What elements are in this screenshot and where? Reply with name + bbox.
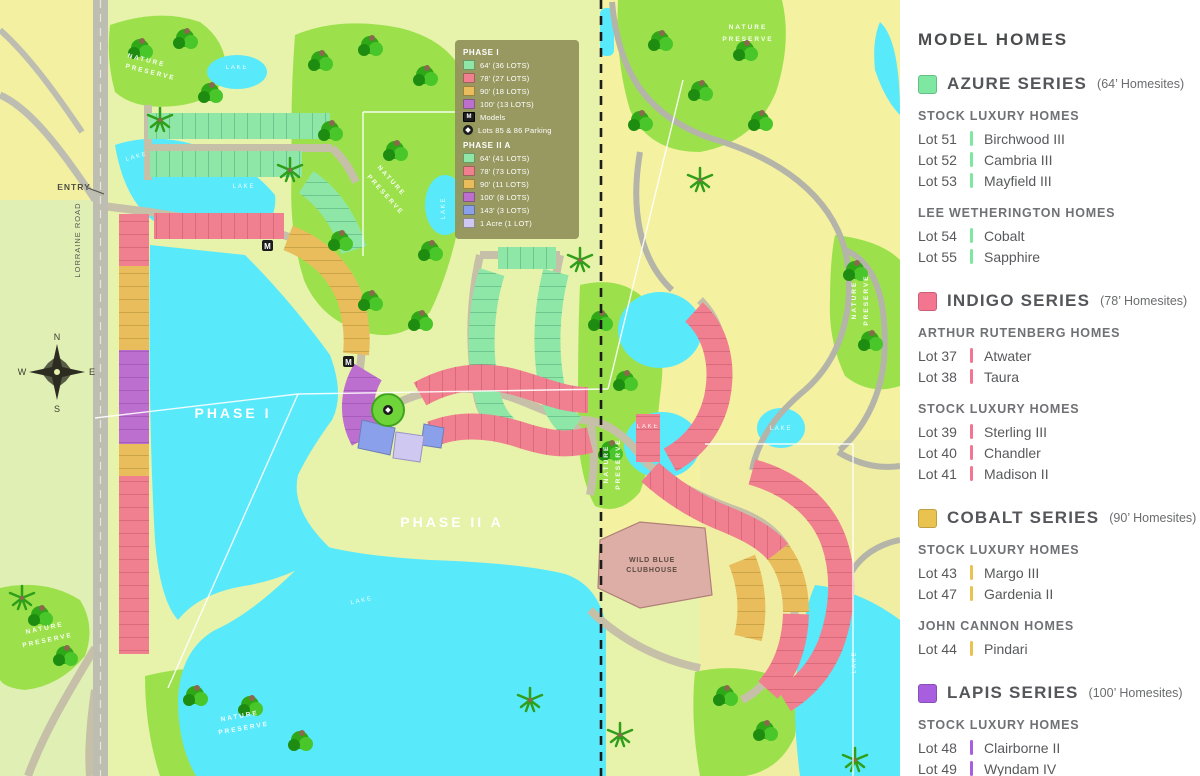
lot-divider <box>970 466 973 481</box>
lot-divider <box>970 228 973 243</box>
preserve-label: PRESERVE <box>615 438 622 489</box>
legend-swatch-143 <box>463 205 475 215</box>
legend-item: 1 Acre (1 LOT) <box>463 218 571 228</box>
phase2a-label: PHASE II A <box>400 514 503 530</box>
legend-item: 78' (73 LOTS) <box>463 166 571 176</box>
legend-swatch-64 <box>463 60 475 70</box>
lot-row: Lot 54Cobalt <box>918 225 1180 246</box>
lapis-swatch-icon <box>918 684 937 703</box>
legend-phase2-title: PHASE II A <box>463 141 571 150</box>
legend-item: 64' (36 LOTS) <box>463 60 571 70</box>
legend-swatch-90 <box>463 179 475 189</box>
page: N E S W ENTRY LORRAINE ROAD PHASE I PHAS… <box>0 0 1200 776</box>
entry-label: ENTRY <box>57 182 91 192</box>
lake-label: LAKE <box>637 424 660 430</box>
legend-swatch-78 <box>463 166 475 176</box>
preserve-label: NATURE <box>603 445 610 484</box>
clubhouse-label-line1: WILD BLUE <box>629 557 675 564</box>
legend-swatch-78 <box>463 73 475 83</box>
lot-row: Lot 37Atwater <box>918 345 1180 366</box>
lot-model-name: Wyndam IV <box>984 761 1056 776</box>
lot-model-name: Mayfield III <box>984 173 1052 189</box>
model-marker: M <box>345 358 352 367</box>
lot-row: Lot 38Taura <box>918 366 1180 387</box>
model-homes-panel: MODEL HOMES AZURE SERIES (64’ Homesites)… <box>900 0 1200 776</box>
lot-model-name: Cobalt <box>984 228 1024 244</box>
legend-swatch-64 <box>463 153 475 163</box>
lot-model-name: Clairborne II <box>984 740 1060 756</box>
lot-divider <box>970 740 973 755</box>
compass-s: S <box>54 404 60 414</box>
legend-item: 90' (18 LOTS) <box>463 86 571 96</box>
legend-item: 143' (3 LOTS) <box>463 205 571 215</box>
legend-swatch-1acre <box>463 218 475 228</box>
legend-item: 100' (8 LOTS) <box>463 192 571 202</box>
series-header-cobalt: COBALT SERIES (90’ Homesites) <box>918 508 1180 528</box>
builder-heading: LEE WETHERINGTON HOMES <box>918 206 1180 220</box>
lot-model-name: Sterling III <box>984 424 1047 440</box>
lot-row: Lot 44Pindari <box>918 638 1180 659</box>
lot-row: Lot 55Sapphire <box>918 246 1180 267</box>
legend-item-parking: Lots 85 & 86 Parking <box>463 125 571 135</box>
lot-row: Lot 49Wyndam IV <box>918 758 1180 776</box>
preserve-label: NATURE <box>729 24 768 31</box>
panel-title: MODEL HOMES <box>918 30 1180 50</box>
legend-item: 100' (13 LOTS) <box>463 99 571 109</box>
lot-row: Lot 41Madison II <box>918 463 1180 484</box>
legend-phase1-title: PHASE I <box>463 48 571 57</box>
lot-row: Lot 53Mayfield III <box>918 170 1180 191</box>
preserve-label: PRESERVE <box>863 274 870 325</box>
lake-label: LAKE <box>441 197 447 220</box>
lot-divider <box>970 761 973 776</box>
site-map: N E S W ENTRY LORRAINE ROAD PHASE I PHAS… <box>0 0 900 776</box>
builder-heading: STOCK LUXURY HOMES <box>918 543 1180 557</box>
lot-model-name: Pindari <box>984 641 1028 657</box>
lot-divider <box>970 131 973 146</box>
legend-item: 78' (27 LOTS) <box>463 73 571 83</box>
builder-heading: JOHN CANNON HOMES <box>918 619 1180 633</box>
lot-model-name: Margo III <box>984 565 1039 581</box>
builder-heading: STOCK LUXURY HOMES <box>918 718 1180 732</box>
lorraine-road-label: LORRAINE ROAD <box>73 202 82 277</box>
legend-item: 64' (41 LOTS) <box>463 153 571 163</box>
lot-model-name: Chandler <box>984 445 1041 461</box>
lot-model-name: Atwater <box>984 348 1031 364</box>
lot-divider <box>970 152 973 167</box>
preserve-label: NATURE <box>851 281 858 320</box>
lot-row: Lot 48Clairborne II <box>918 737 1180 758</box>
legend-swatch-100 <box>463 99 475 109</box>
model-marker: M <box>264 242 271 251</box>
lot-divider <box>970 348 973 363</box>
builder-heading: STOCK LUXURY HOMES <box>918 402 1180 416</box>
lot-divider <box>970 586 973 601</box>
series-header-lapis: LAPIS SERIES (100’ Homesites) <box>918 683 1180 703</box>
parking-icon <box>463 125 473 135</box>
preserve-label: PRESERVE <box>722 36 773 43</box>
lot-divider <box>970 445 973 460</box>
legend-swatch-90 <box>463 86 475 96</box>
azure-swatch-icon <box>918 75 937 94</box>
lot-model-name: Cambria III <box>984 152 1052 168</box>
lot-divider <box>970 249 973 264</box>
lot-row: Lot 40Chandler <box>918 442 1180 463</box>
lot-row: Lot 47Gardenia II <box>918 583 1180 604</box>
clubhouse-label-line2: CLUBHOUSE <box>626 567 678 574</box>
lot-divider <box>970 641 973 656</box>
lot-divider <box>970 565 973 580</box>
lot-row: Lot 51Birchwood III <box>918 128 1180 149</box>
lot-model-name: Sapphire <box>984 249 1040 265</box>
lot-model-name: Taura <box>984 369 1019 385</box>
indigo-swatch-icon <box>918 292 937 311</box>
site-map-area: N E S W ENTRY LORRAINE ROAD PHASE I PHAS… <box>0 0 900 776</box>
lot-model-name: Madison II <box>984 466 1049 482</box>
lot-row: Lot 52Cambria III <box>918 149 1180 170</box>
lake-label: LAKE <box>233 184 256 190</box>
compass-w: W <box>18 367 27 377</box>
compass-e: E <box>89 367 95 377</box>
lot-divider <box>970 173 973 188</box>
map-legend: PHASE I 64' (36 LOTS) 78' (27 LOTS) 90' … <box>455 40 579 239</box>
compass-n: N <box>54 332 61 342</box>
phase1-label: PHASE I <box>194 405 271 421</box>
legend-item-models: MModels <box>463 112 571 122</box>
lot-divider <box>970 369 973 384</box>
lot-row: Lot 39Sterling III <box>918 421 1180 442</box>
builder-heading: ARTHUR RUTENBERG HOMES <box>918 326 1180 340</box>
series-header-azure: AZURE SERIES (64’ Homesites) <box>918 74 1180 94</box>
models-chip-icon: M <box>463 112 475 122</box>
legend-swatch-100 <box>463 192 475 202</box>
series-header-indigo: INDIGO SERIES (78’ Homesites) <box>918 291 1180 311</box>
lot-divider <box>970 424 973 439</box>
lot-model-name: Gardenia II <box>984 586 1053 602</box>
legend-item: 90' (11 LOTS) <box>463 179 571 189</box>
builder-heading: STOCK LUXURY HOMES <box>918 109 1180 123</box>
lot-model-name: Birchwood III <box>984 131 1065 147</box>
lake-label: LAKE <box>226 65 249 71</box>
lot-row: Lot 43Margo III <box>918 562 1180 583</box>
lake-label: LAKE <box>852 651 858 674</box>
cobalt-swatch-icon <box>918 509 937 528</box>
lake-label: LAKE <box>770 426 793 432</box>
